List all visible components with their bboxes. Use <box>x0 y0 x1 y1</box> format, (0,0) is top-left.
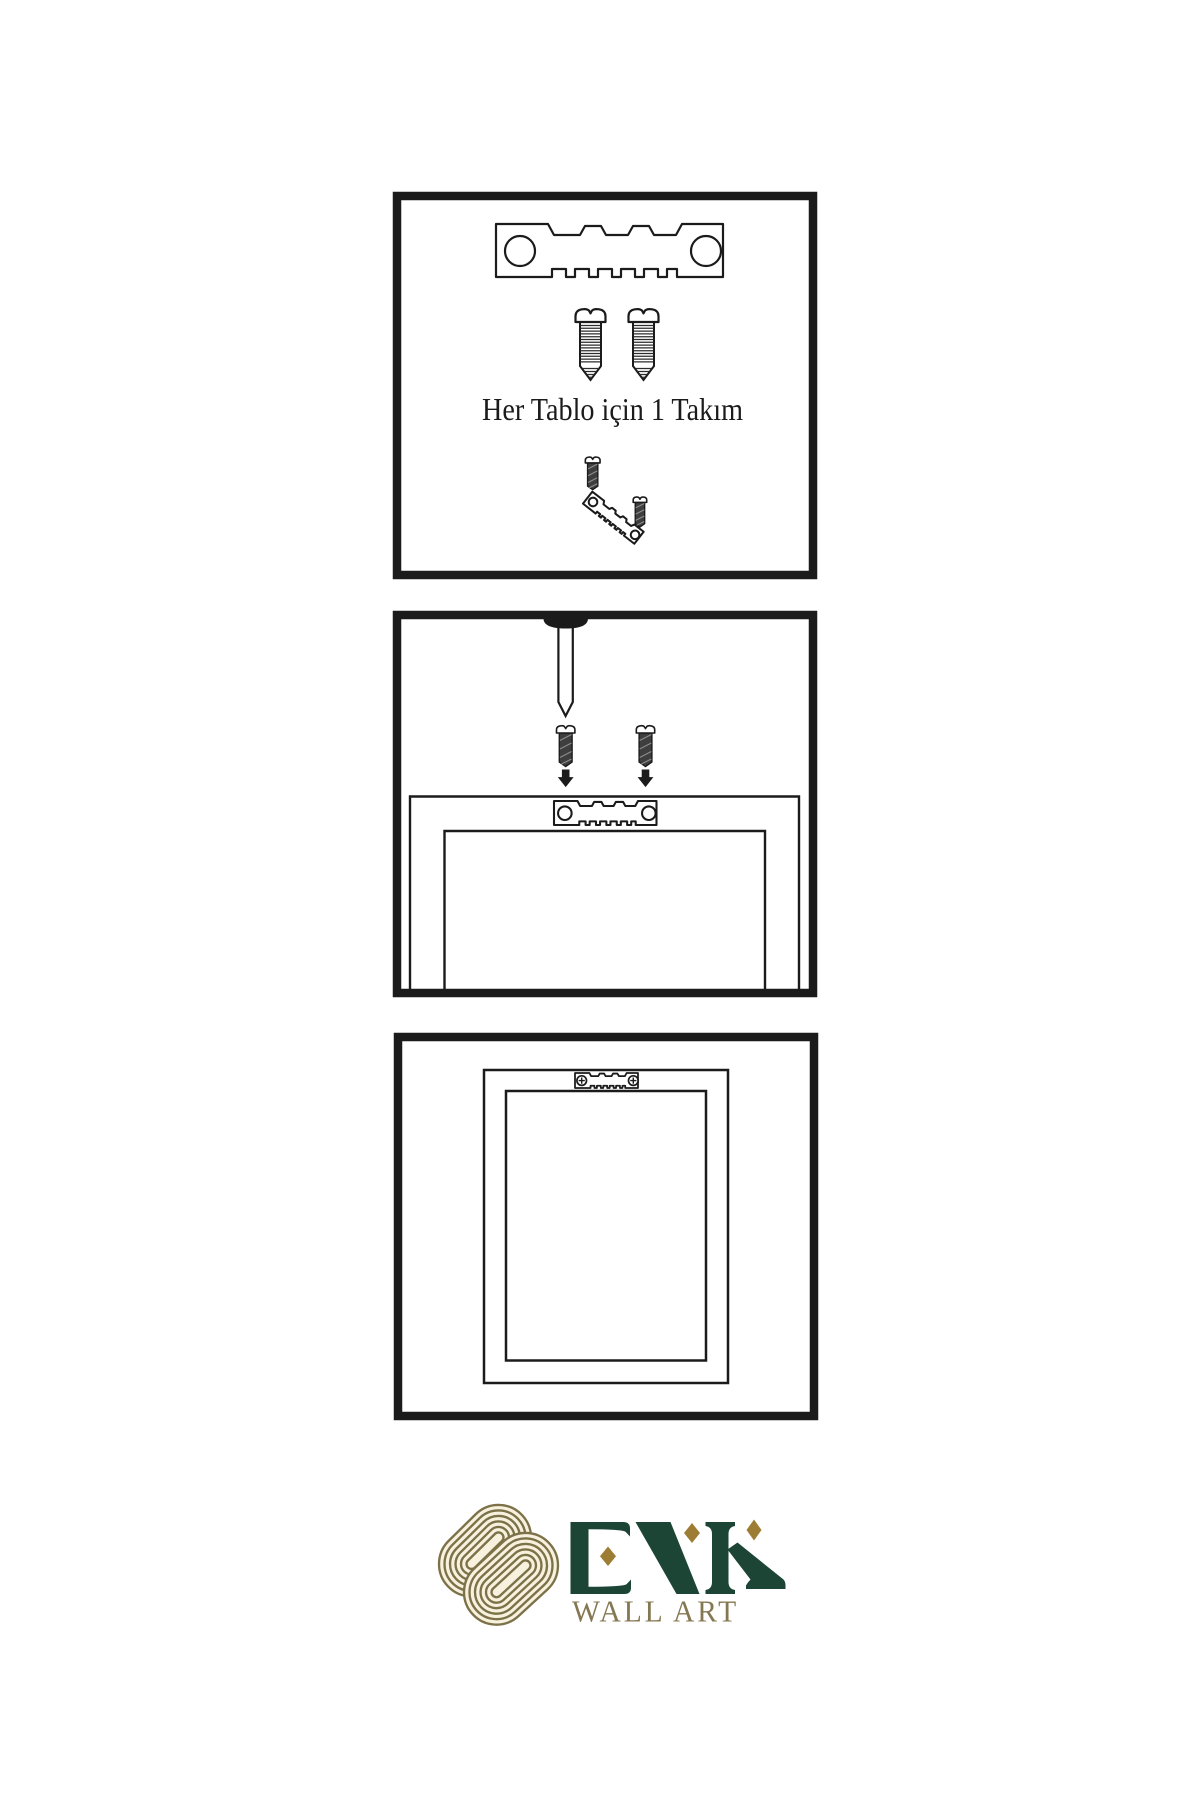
svg-text:WALL ART: WALL ART <box>572 1594 739 1629</box>
svg-text:Her Tablo için 1 Takım: Her Tablo için 1 Takım <box>482 391 743 427</box>
